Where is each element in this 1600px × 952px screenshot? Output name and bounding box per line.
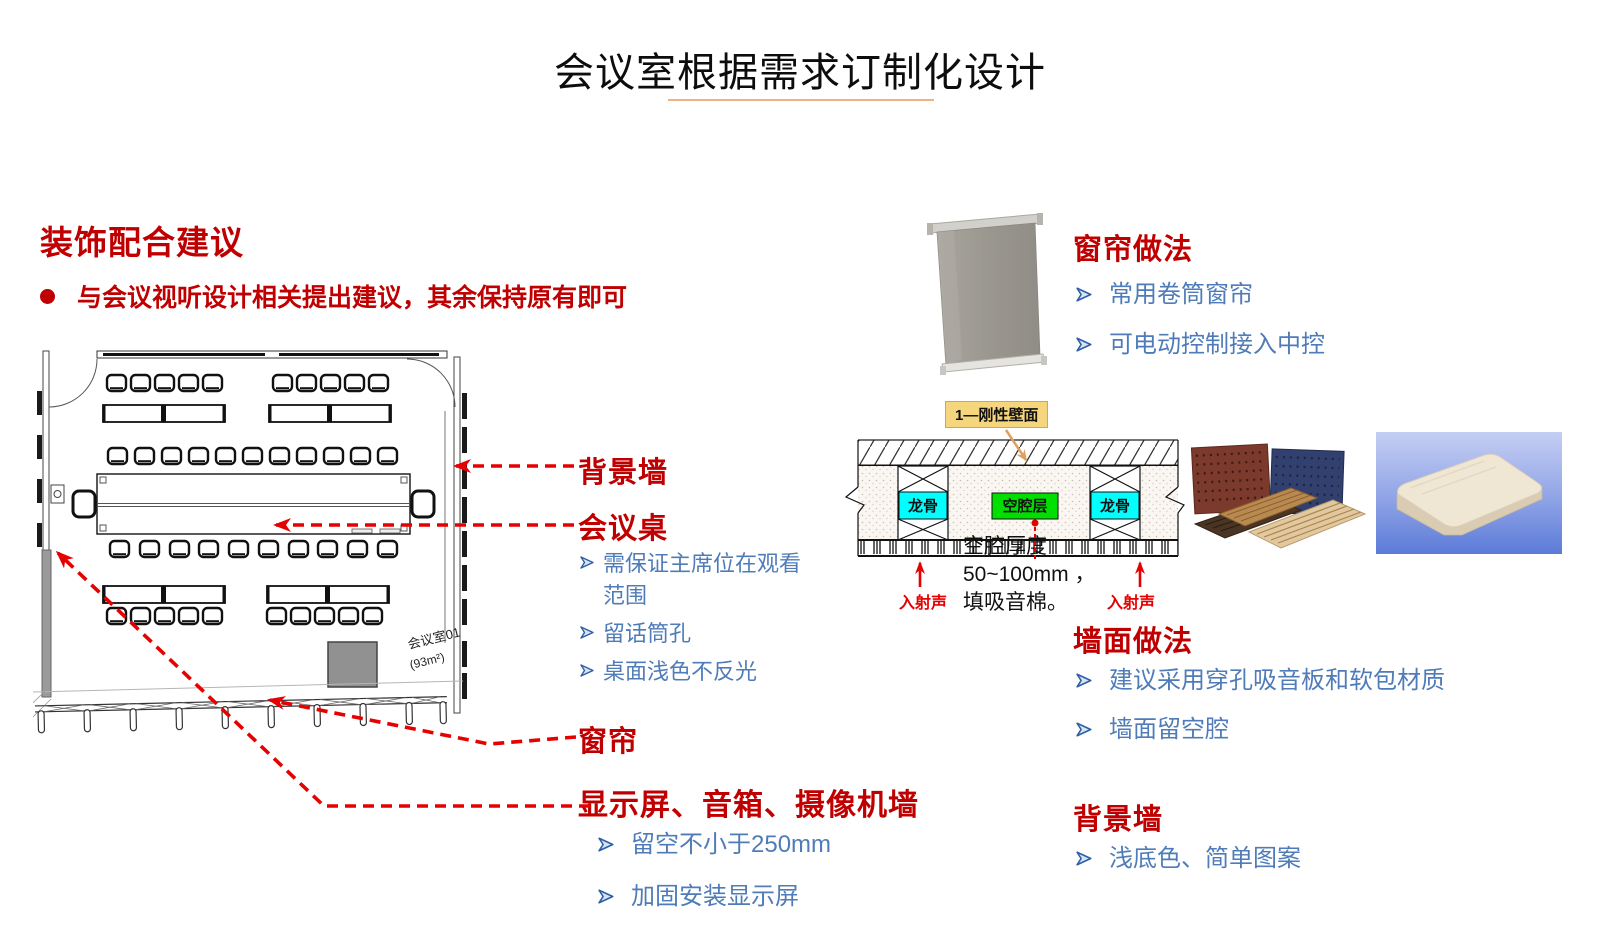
roller-blind-image	[924, 208, 1056, 386]
bullet-arrow-icon	[580, 555, 595, 570]
display-wall-bullet-list: 留空不小于250mm 加固安装显示屏	[598, 828, 831, 914]
curtain-section-heading: 窗帘做法	[1073, 226, 1193, 268]
list-item: 留话筒孔	[580, 618, 807, 650]
curtain-wall	[35, 697, 448, 733]
title-underline	[668, 99, 934, 101]
curtain-section-list: 常用卷筒窗帘 可电动控制接入中控	[1076, 278, 1325, 362]
wall-section-list: 建议采用穿孔吸音板和软包材质 墙面留空腔	[1076, 664, 1445, 747]
bullet-arrow-icon	[1076, 850, 1093, 867]
bullet-text: 浅底色、简单图案	[1109, 842, 1301, 876]
list-item: 浅底色、简单图案	[1076, 842, 1301, 876]
room-label-line1: 会议室01	[406, 624, 462, 651]
callout-curtain: 窗帘	[578, 718, 638, 760]
table-bullet-list: 需保证主席位在观看范围 留话筒孔 桌面浅色不反光	[580, 548, 807, 688]
chair-row-3	[110, 541, 397, 557]
bgwall-section-heading: 背景墙	[1073, 796, 1163, 838]
rigid-wall-tag: 1—刚性壁面	[945, 401, 1048, 428]
bullet-arrow-icon	[580, 663, 595, 678]
page-title: 会议室根据需求订制化设计	[0, 40, 1600, 98]
acoustic-panels-image	[1185, 432, 1373, 556]
list-item: 需保证主席位在观看范围	[580, 548, 807, 612]
bullet-arrow-icon	[598, 888, 615, 905]
bullet-arrow-icon	[1076, 672, 1093, 689]
left-section-heading: 装饰配合建议	[40, 216, 244, 264]
callout-display-wall: 显示屏、音箱、摄像机墙	[578, 780, 919, 824]
bullet-text: 建议采用穿孔吸音板和软包材质	[1109, 664, 1445, 698]
list-item: 加固安装显示屏	[598, 880, 831, 914]
list-item: 可电动控制接入中控	[1076, 328, 1325, 362]
keel-label: 龙骨	[1099, 497, 1130, 515]
list-item: 建议采用穿孔吸音板和软包材质	[1076, 664, 1445, 698]
left-bullet-row: 与会议视听设计相关提出建议，其余保持原有即可	[40, 278, 627, 314]
bullet-text: 留话筒孔	[603, 618, 691, 650]
cavity-label: 空腔层	[1002, 497, 1047, 515]
soft-panel-image	[1376, 432, 1562, 554]
callout-table: 会议桌	[578, 505, 668, 547]
bullet-text: 加固安装显示屏	[631, 880, 799, 914]
chair-row-2	[108, 448, 397, 464]
bullet-arrow-icon	[580, 625, 595, 640]
incident-sound-label: 入射声	[888, 589, 958, 613]
list-item: 桌面浅色不反光	[580, 656, 807, 688]
wall-section-heading: 墙面做法	[1073, 618, 1193, 660]
cavity-note-line2: 50~100mm ，	[963, 561, 1123, 589]
cavity-note-line1: 空腔厚度	[963, 533, 1123, 561]
keel-label: 龙骨	[907, 497, 938, 515]
callout-bg-wall: 背景墙	[578, 449, 668, 491]
equipment-block	[328, 642, 377, 687]
bullet-text: 留空不小于250mm	[631, 828, 831, 862]
list-item: 常用卷筒窗帘	[1076, 278, 1325, 312]
chair-row-4	[107, 608, 382, 624]
bullet-text: 桌面浅色不反光	[603, 656, 757, 688]
chair-row-1	[107, 375, 388, 391]
bullet-text: 墙面留空腔	[1109, 713, 1229, 747]
left-bullet-text: 与会议视听设计相关提出建议，其余保持原有即可	[77, 278, 627, 314]
bullet-text: 常用卷筒窗帘	[1109, 278, 1253, 312]
list-item: 墙面留空腔	[1076, 713, 1445, 747]
bullet-arrow-icon	[1076, 336, 1093, 353]
bgwall-section-list: 浅底色、简单图案	[1076, 842, 1301, 876]
slide: 会议室根据需求订制化设计 装饰配合建议 与会议视听设计相关提出建议，其余保持原有…	[0, 0, 1600, 952]
bullet-arrow-icon	[1076, 721, 1093, 738]
room-label-line2: (93m²)	[408, 650, 446, 672]
list-item: 留空不小于250mm	[598, 828, 831, 862]
bullet-text: 可电动控制接入中控	[1109, 328, 1325, 362]
bullet-dot-icon	[40, 289, 55, 304]
bullet-text: 需保证主席位在观看范围	[603, 548, 807, 612]
bullet-arrow-icon	[598, 836, 615, 853]
floorplan-drawing: 会议室01 (93m²)	[33, 345, 483, 745]
bullet-arrow-icon	[1076, 286, 1093, 303]
incident-sound-label: 入射声	[1096, 589, 1166, 613]
